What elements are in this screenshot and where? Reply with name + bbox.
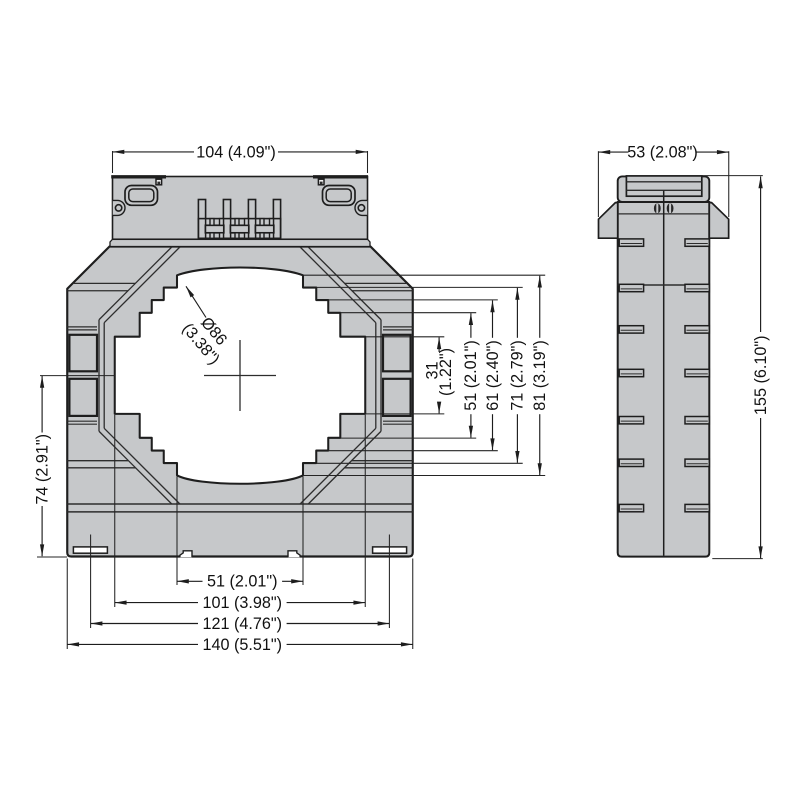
svg-text:53 (2.08"): 53 (2.08") [627,144,698,162]
svg-text:140 (5.51"): 140 (5.51") [203,636,283,654]
svg-text:101 (3.98"): 101 (3.98") [203,594,283,612]
svg-text:81 (3.19"): 81 (3.19") [531,340,549,411]
svg-text:51 (2.01"): 51 (2.01") [207,573,278,591]
svg-text:155 (6.10"): 155 (6.10") [752,336,770,416]
svg-text:(1.22"): (1.22") [437,348,455,396]
svg-text:74 (2.91"): 74 (2.91") [34,434,52,505]
svg-text:71 (2.79"): 71 (2.79") [509,340,527,411]
svg-text:61 (2.40"): 61 (2.40") [484,340,502,411]
svg-text:51 (2.01"): 51 (2.01") [462,340,480,411]
svg-text:121 (4.76"): 121 (4.76") [203,615,283,633]
svg-text:104 (4.09"): 104 (4.09") [196,143,276,161]
